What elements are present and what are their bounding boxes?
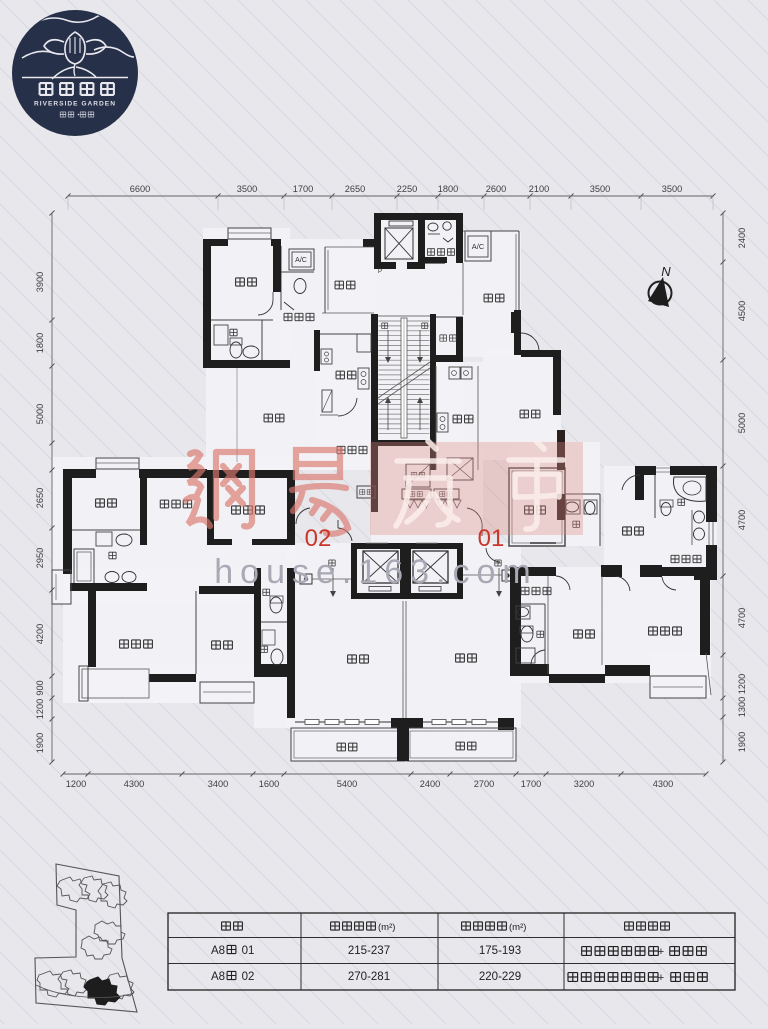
svg-text:1200: 1200 <box>66 779 86 789</box>
svg-text:1800: 1800 <box>35 333 45 353</box>
svg-text:01: 01 <box>242 945 255 957</box>
svg-text:215-237: 215-237 <box>348 945 390 957</box>
svg-text:1300: 1300 <box>737 697 747 717</box>
svg-text:270-281: 270-281 <box>348 971 390 983</box>
svg-text:2700: 2700 <box>474 779 494 789</box>
svg-text:4200: 4200 <box>35 624 45 644</box>
svg-text:5000: 5000 <box>35 404 45 424</box>
svg-text:2600: 2600 <box>486 184 506 194</box>
svg-text:2650: 2650 <box>35 488 45 508</box>
svg-text:N: N <box>661 264 671 279</box>
svg-text:(m²): (m²) <box>509 922 526 933</box>
svg-text:02: 02 <box>242 971 255 983</box>
svg-text:A/C: A/C <box>295 257 307 264</box>
svg-text:900: 900 <box>35 680 45 695</box>
svg-text:RIVERSIDE GARDEN: RIVERSIDE GARDEN <box>34 101 116 108</box>
svg-text:1200: 1200 <box>35 699 45 719</box>
svg-text:1700: 1700 <box>293 184 313 194</box>
svg-text:2250: 2250 <box>397 184 417 194</box>
svg-text:3500: 3500 <box>662 184 682 194</box>
svg-text:3400: 3400 <box>208 779 228 789</box>
svg-text:+: + <box>658 972 664 984</box>
svg-text:2950: 2950 <box>35 548 45 568</box>
svg-text:2650: 2650 <box>345 184 365 194</box>
svg-text:2400: 2400 <box>737 228 747 248</box>
svg-text:6600: 6600 <box>130 184 150 194</box>
svg-text:5400: 5400 <box>337 779 357 789</box>
svg-text:4500: 4500 <box>737 301 747 321</box>
svg-text:P: P <box>378 269 382 275</box>
svg-text:1700: 1700 <box>521 779 541 789</box>
svg-text:4300: 4300 <box>124 779 144 789</box>
svg-text:4700: 4700 <box>737 510 747 530</box>
svg-text:1900: 1900 <box>35 733 45 753</box>
svg-text:1800: 1800 <box>438 184 458 194</box>
svg-text:4300: 4300 <box>653 779 673 789</box>
svg-text:3500: 3500 <box>590 184 610 194</box>
svg-text:A8: A8 <box>211 945 225 957</box>
svg-text:+: + <box>658 946 664 958</box>
svg-text:(m²): (m²) <box>378 922 395 933</box>
svg-text:3900: 3900 <box>35 272 45 292</box>
svg-text:02: 02 <box>305 525 332 552</box>
svg-text:1600: 1600 <box>259 779 279 789</box>
svg-text:4700: 4700 <box>737 608 747 628</box>
svg-text:175-193: 175-193 <box>479 945 521 957</box>
svg-text:5000: 5000 <box>737 413 747 433</box>
svg-text:220-229: 220-229 <box>479 971 521 983</box>
svg-text:1200: 1200 <box>737 674 747 694</box>
svg-text:3200: 3200 <box>574 779 594 789</box>
svg-text:2400: 2400 <box>420 779 440 789</box>
svg-text:A/C: A/C <box>472 242 485 251</box>
svg-text:A8: A8 <box>211 971 225 983</box>
svg-text:house.163.com: house.163.com <box>214 553 538 591</box>
svg-text:3500: 3500 <box>237 184 257 194</box>
svg-text:01: 01 <box>478 525 505 552</box>
svg-text:2100: 2100 <box>529 184 549 194</box>
svg-text:1900: 1900 <box>737 732 747 752</box>
